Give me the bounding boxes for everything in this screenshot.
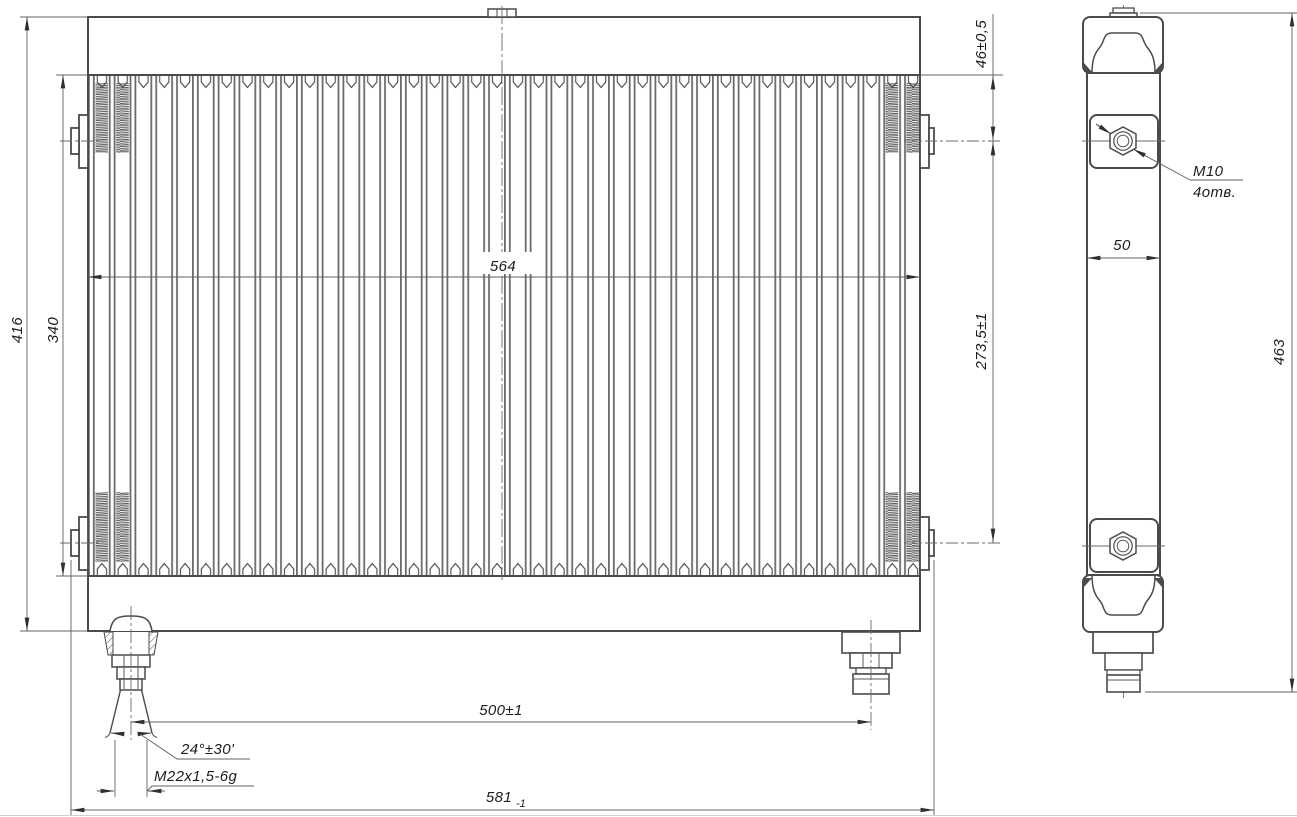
drawing-sheet: 416 340 564 46±0,5 273,5±1 500±1 581 -1 …	[0, 0, 1297, 817]
dim-top-mount-offset: 46±0,5	[973, 20, 990, 68]
core-top-notches	[88, 75, 920, 90]
dim-side-width: 50	[1113, 237, 1131, 254]
dim-port-thread: M22x1,5-6g	[154, 768, 237, 785]
dim-core-height: 340	[45, 317, 62, 343]
dim-height-overall: 416	[9, 317, 26, 343]
left-port-fitting	[104, 606, 158, 740]
side-bottom-mount-pad	[1082, 519, 1165, 572]
dim-mount-hole-count: 4отв.	[1193, 184, 1236, 201]
dim-mount-span: 273,5±1	[973, 313, 990, 371]
dim-cone-angle: 24°±30'	[180, 741, 235, 758]
front-view	[60, 6, 1002, 740]
dim-port-span: 500±1	[479, 702, 523, 719]
right-port-fitting	[842, 620, 900, 730]
top-tank	[88, 17, 920, 75]
side-top-cap	[1083, 17, 1163, 73]
side-bottom-cap	[1083, 575, 1163, 632]
core-bottom-notches	[88, 561, 920, 576]
side-bottom-fitting	[1093, 632, 1153, 692]
dim-mount-thread: M10	[1193, 163, 1224, 180]
dim-length-overall-tol: -1	[516, 798, 526, 810]
dim-length-overall: 581	[486, 789, 512, 806]
radiator-core	[88, 75, 920, 576]
bottom-tank	[88, 576, 920, 631]
radiator-technical-drawing: 416 340 564 46±0,5 273,5±1 500±1 581 -1 …	[0, 0, 1297, 817]
dim-side-height: 463	[1271, 339, 1288, 365]
side-view: M10 4отв. 50	[1082, 5, 1297, 700]
dim-core-width: 564	[490, 258, 516, 275]
